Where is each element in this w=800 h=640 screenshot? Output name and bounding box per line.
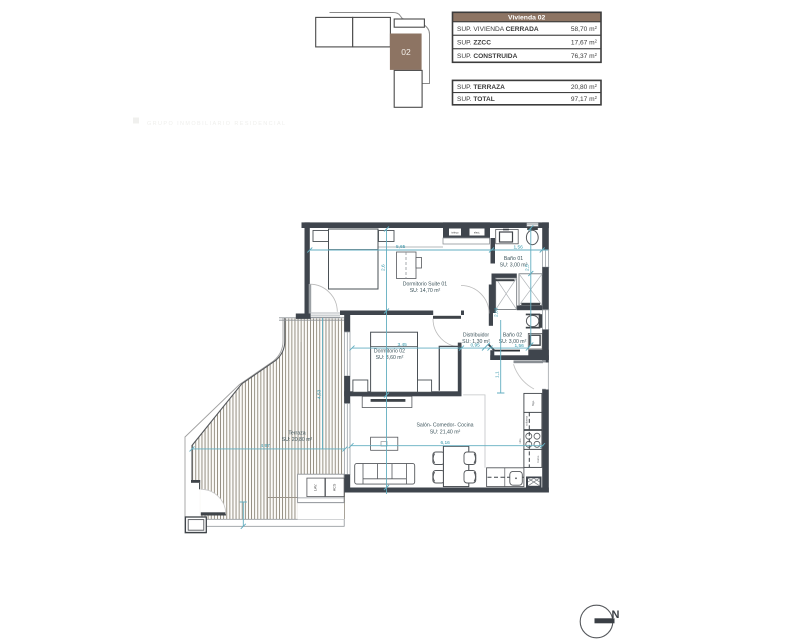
svg-text:elect.: elect. (474, 231, 480, 235)
svg-text:2,03: 2,03 (493, 307, 499, 317)
svg-text:Dormitorio Suite 01: Dormitorio Suite 01 (403, 282, 448, 288)
svg-text:SU: 20,80 m²: SU: 20,80 m² (282, 437, 313, 443)
svg-text:frigo.: frigo. (531, 400, 535, 406)
svg-text:2,6: 2,6 (381, 264, 387, 271)
svg-text:columna: columna (525, 416, 529, 426)
svg-text:LAV.: LAV. (314, 484, 318, 491)
svg-text:2,5: 2,5 (525, 264, 531, 271)
svg-text:6,16: 6,16 (441, 440, 451, 446)
svg-text:1,56: 1,56 (515, 343, 525, 349)
svg-text:Vivienda 02: Vivienda 02 (508, 15, 545, 22)
svg-text:vitro: vitro (518, 438, 522, 443)
svg-text:Baño 01: Baño 01 (504, 256, 523, 262)
svg-text:SUP. TOTAL: SUP. TOTAL (457, 96, 495, 103)
svg-text:N: N (612, 609, 620, 621)
svg-text:ACS: ACS (333, 483, 337, 491)
svg-text:97,17 m2: 97,17 m2 (571, 95, 598, 103)
svg-text:02: 02 (401, 47, 411, 57)
svg-text:76,37 m2: 76,37 m2 (571, 52, 598, 60)
svg-text:GRUPO INMOBILIARIO RESIDENCIAL: GRUPO INMOBILIARIO RESIDENCIAL (147, 121, 287, 127)
svg-text:horno: horno (536, 455, 540, 462)
svg-text:SUP. VIVIENDA CERRADA: SUP. VIVIENDA CERRADA (457, 26, 539, 33)
svg-text:Distribuidor: Distribuidor (463, 333, 490, 339)
svg-text:SUP. CONSTRUIDA: SUP. CONSTRUIDA (457, 53, 518, 60)
svg-text:SUP. TERRAZA: SUP. TERRAZA (457, 84, 505, 91)
svg-text:SU: 14,70 m²: SU: 14,70 m² (410, 288, 441, 294)
svg-text:Baño 02: Baño 02 (503, 333, 522, 339)
svg-text:SU: 8,60 m²: SU: 8,60 m² (376, 355, 404, 361)
svg-text:Dormitorio 02: Dormitorio 02 (374, 349, 405, 355)
svg-text:SU: 21,40 m²: SU: 21,40 m² (430, 430, 461, 436)
svg-text:1,1: 1,1 (495, 371, 501, 378)
svg-text:58,70 m2: 58,70 m2 (571, 25, 598, 33)
svg-text:4,97: 4,97 (261, 443, 271, 449)
svg-text:3,45: 3,45 (398, 342, 408, 348)
svg-text:Salón- Comedor- Cocina: Salón- Comedor- Cocina (416, 423, 473, 429)
svg-text:4,53: 4,53 (317, 389, 323, 399)
svg-text:1,56: 1,56 (514, 244, 524, 250)
svg-text:SU: 3,00 m²: SU: 3,00 m² (500, 263, 528, 269)
svg-text:20,80 m2: 20,80 m2 (571, 83, 598, 91)
svg-text:17,67 m2: 17,67 m2 (571, 39, 598, 47)
svg-text:0,95: 0,95 (471, 343, 481, 349)
svg-text:SUP. ZZCC: SUP. ZZCC (457, 40, 491, 47)
svg-text:teleco: teleco (452, 231, 459, 235)
svg-text:5,65: 5,65 (396, 244, 406, 250)
svg-text:Terraza: Terraza (288, 431, 305, 437)
